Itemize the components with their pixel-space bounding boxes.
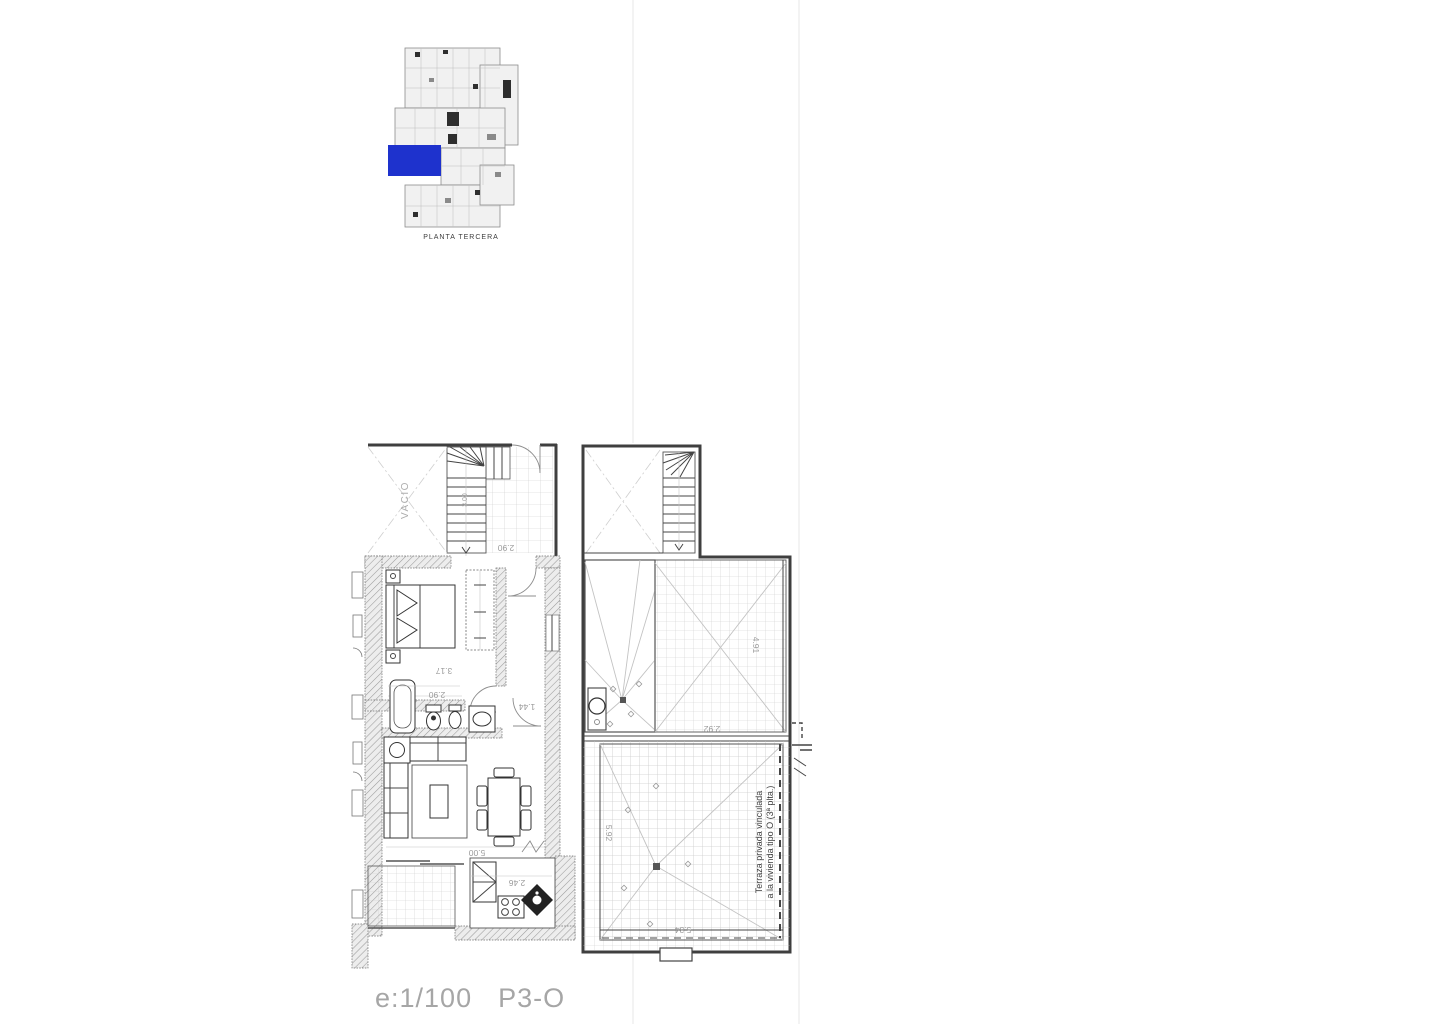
footer: e:1/100 P3-O [375, 983, 565, 1014]
key-plan-building [388, 48, 518, 227]
adjacent-wall-fragments [792, 723, 812, 776]
terrace-note-line1: Terraza privada vinculada [754, 791, 764, 894]
washbasin [469, 706, 495, 732]
dim-hall: 1.44 [518, 702, 535, 712]
kitchen: 2.46 [470, 858, 555, 928]
dim-upper-terrace-w: 2.92 [703, 724, 720, 734]
terrace-note-line2: a la vivienda tipo O (3ª plta.) [765, 786, 775, 899]
dim-kitchen: 2.46 [508, 878, 525, 888]
dim-terrace-w: 5.34 [674, 925, 691, 935]
private-terrace: 5.92 5.34 Terraza privada vinculada a la… [583, 741, 790, 961]
scale-label: e:1/100 [375, 983, 472, 1014]
balcony [368, 861, 464, 928]
bidet [449, 705, 461, 729]
key-plan: PLANTA TERCERA [385, 38, 525, 248]
terrace-step [660, 948, 692, 961]
dim-terrace-h: 5.92 [604, 825, 614, 842]
plan-code: P3-O [498, 983, 565, 1014]
page: PLANTA TERCERA [0, 0, 1440, 1024]
roof-area [585, 560, 655, 732]
selected-unit-highlight [388, 145, 441, 176]
dim-bath: 2.90 [428, 690, 445, 700]
dim-living: 5.00 [468, 848, 485, 858]
dim-landing: 2.90 [497, 543, 514, 553]
nightstand [386, 650, 400, 663]
bed [386, 585, 455, 648]
floor-plan: 3.00 2.90 VACIO [335, 425, 825, 1000]
stair-run-label: 3.00 [462, 493, 469, 507]
toilet [426, 705, 441, 730]
nightstand [386, 570, 400, 583]
stairs-upper-unit [663, 452, 695, 553]
key-plan-title: PLANTA TERCERA [423, 234, 499, 241]
facade-fixtures [352, 572, 363, 918]
roof-drain [588, 688, 606, 730]
dim-upper-terrace-h: 4.91 [751, 637, 761, 654]
dim-bedroom: 3.17 [435, 666, 452, 676]
void-label: VACIO [400, 481, 411, 519]
fridge [473, 862, 496, 902]
stove [498, 896, 524, 918]
upper-terrace: 4.91 2.92 [655, 560, 786, 734]
